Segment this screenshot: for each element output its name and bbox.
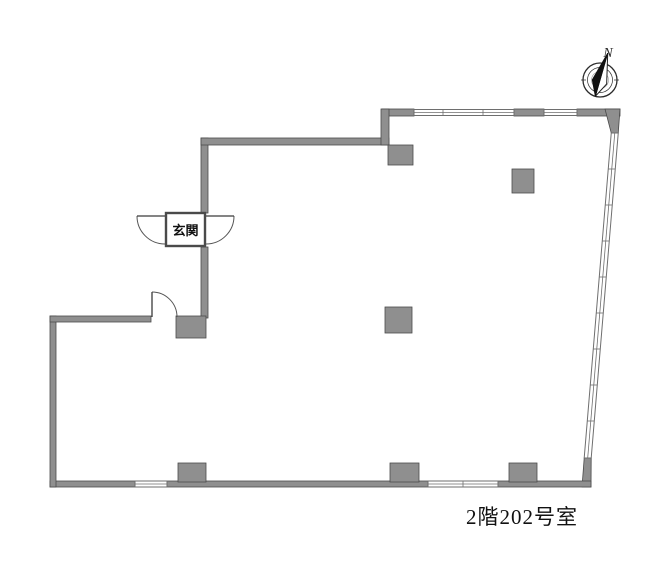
entrance-area: 玄関 — [137, 213, 234, 246]
wall-corner-top-right — [605, 109, 620, 133]
wall-top-mid — [514, 109, 544, 116]
entrance-label: 玄関 — [172, 223, 198, 238]
window-glass-line — [588, 133, 615, 458]
columns — [176, 145, 537, 482]
entrance-door-swing-left — [137, 216, 165, 244]
pillar — [178, 463, 206, 482]
compass-north-label: N — [602, 46, 613, 61]
wall-notch-horizontal — [201, 138, 389, 145]
pillar — [390, 463, 419, 482]
interior-door-swing — [152, 292, 177, 317]
wall-notch-vertical — [381, 109, 389, 145]
pillar — [388, 145, 413, 165]
window-top-1 — [414, 110, 514, 116]
interior-door — [152, 292, 177, 317]
window-top-2 — [544, 110, 577, 116]
window-right-slanted — [584, 133, 618, 458]
entrance-door-swing-right — [206, 216, 234, 244]
wall-upper-left-vertical-b — [201, 247, 208, 318]
pillar — [512, 169, 534, 193]
outer-walls — [50, 109, 620, 487]
compass: N — [581, 46, 619, 98]
window-bottom-1 — [135, 481, 167, 487]
floor-plan-page: 玄関 N 2階202号室 — [0, 0, 647, 566]
floor-plan-svg: 玄関 N 2階202号室 — [0, 0, 647, 566]
pillar — [509, 463, 537, 482]
wall-left — [50, 316, 56, 487]
pillar — [385, 307, 412, 333]
room-title: 2階202号室 — [466, 505, 578, 529]
wall-mid-horizontal — [50, 316, 151, 322]
window-bottom-2 — [428, 481, 498, 487]
pillar — [176, 316, 206, 338]
wall-upper-left-vertical-a — [201, 138, 208, 213]
